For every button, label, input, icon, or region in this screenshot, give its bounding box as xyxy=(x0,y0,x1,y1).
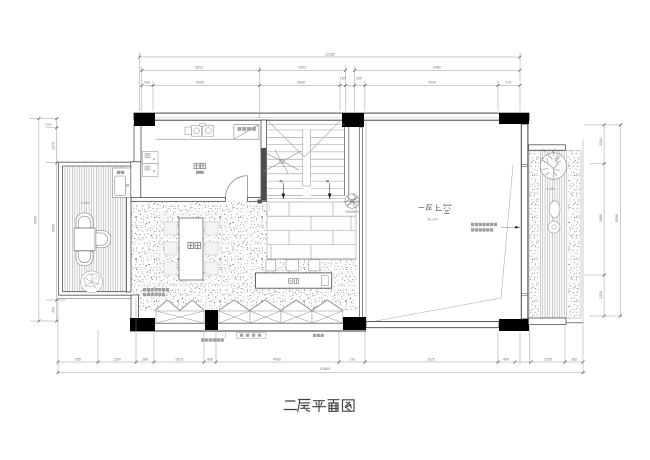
svg-text:36.1m²: 36.1m² xyxy=(427,218,439,222)
svg-text:955: 955 xyxy=(75,357,81,361)
svg-text:180: 180 xyxy=(340,77,346,81)
svg-text:1375: 1375 xyxy=(52,142,56,150)
svg-text:450: 450 xyxy=(52,307,56,313)
svg-text:1265: 1265 xyxy=(544,357,552,361)
svg-text:3482: 3482 xyxy=(433,66,441,70)
svg-text:10800: 10800 xyxy=(320,367,331,371)
svg-text:710: 710 xyxy=(505,81,511,85)
svg-text:365: 365 xyxy=(571,357,577,361)
svg-text:570: 570 xyxy=(46,123,52,127)
svg-text:380: 380 xyxy=(142,357,148,361)
svg-text:430: 430 xyxy=(207,357,213,361)
svg-text:225: 225 xyxy=(356,77,362,81)
svg-text:1320: 1320 xyxy=(599,291,603,299)
svg-text:4330: 4330 xyxy=(428,81,436,85)
svg-text:6590: 6590 xyxy=(615,214,619,222)
svg-text:730: 730 xyxy=(349,357,355,361)
svg-text:5.9m²: 5.9m² xyxy=(81,201,91,205)
svg-text:1025: 1025 xyxy=(427,357,435,361)
svg-text:490: 490 xyxy=(503,357,509,361)
svg-text:3913: 3913 xyxy=(195,66,203,70)
svg-text:2903: 2903 xyxy=(298,66,306,70)
svg-text:6295: 6295 xyxy=(52,224,56,232)
svg-text:1615: 1615 xyxy=(175,357,183,361)
svg-text:12385: 12385 xyxy=(325,52,335,56)
svg-text:3065: 3065 xyxy=(196,81,204,85)
svg-text:3880: 3880 xyxy=(599,214,603,222)
svg-text:1250: 1250 xyxy=(113,357,121,361)
svg-text:430: 430 xyxy=(144,81,150,85)
svg-text:6.3m²: 6.3m² xyxy=(547,187,557,191)
svg-text:1360: 1360 xyxy=(599,138,603,146)
svg-text:4060: 4060 xyxy=(273,357,281,361)
svg-text:2690: 2690 xyxy=(297,81,305,85)
svg-text:8690: 8690 xyxy=(34,216,38,224)
